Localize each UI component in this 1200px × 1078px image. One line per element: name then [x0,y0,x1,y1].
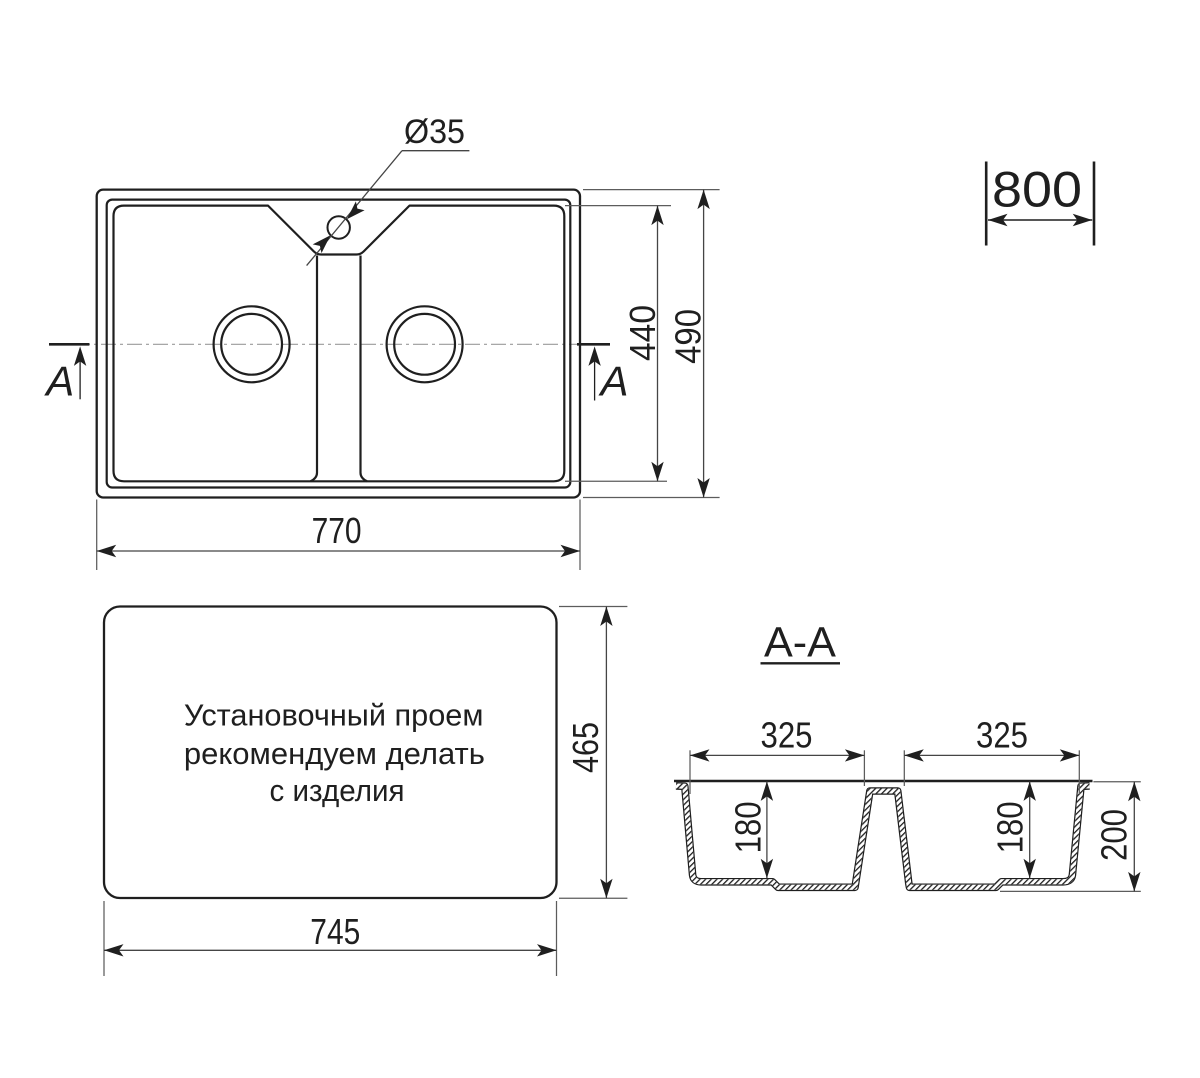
svg-text:325: 325 [976,715,1028,756]
svg-text:с изделия: с изделия [270,773,405,808]
svg-text:A: A [43,358,74,405]
svg-text:Ø35: Ø35 [404,113,465,151]
svg-text:180: 180 [990,801,1031,853]
svg-text:770: 770 [312,510,362,551]
svg-text:325: 325 [761,715,813,756]
svg-text:200: 200 [1093,809,1134,861]
svg-text:рекомендуем делать: рекомендуем делать [184,736,485,771]
svg-text:Установочный проем: Установочный проем [184,698,484,733]
svg-text:465: 465 [565,722,606,773]
svg-text:A: A [597,358,628,405]
svg-text:745: 745 [310,911,360,952]
svg-text:490: 490 [667,309,708,364]
svg-text:180: 180 [728,801,769,853]
svg-text:440: 440 [622,305,663,361]
svg-text:800: 800 [992,162,1082,218]
svg-text:A-A: A-A [764,619,836,667]
